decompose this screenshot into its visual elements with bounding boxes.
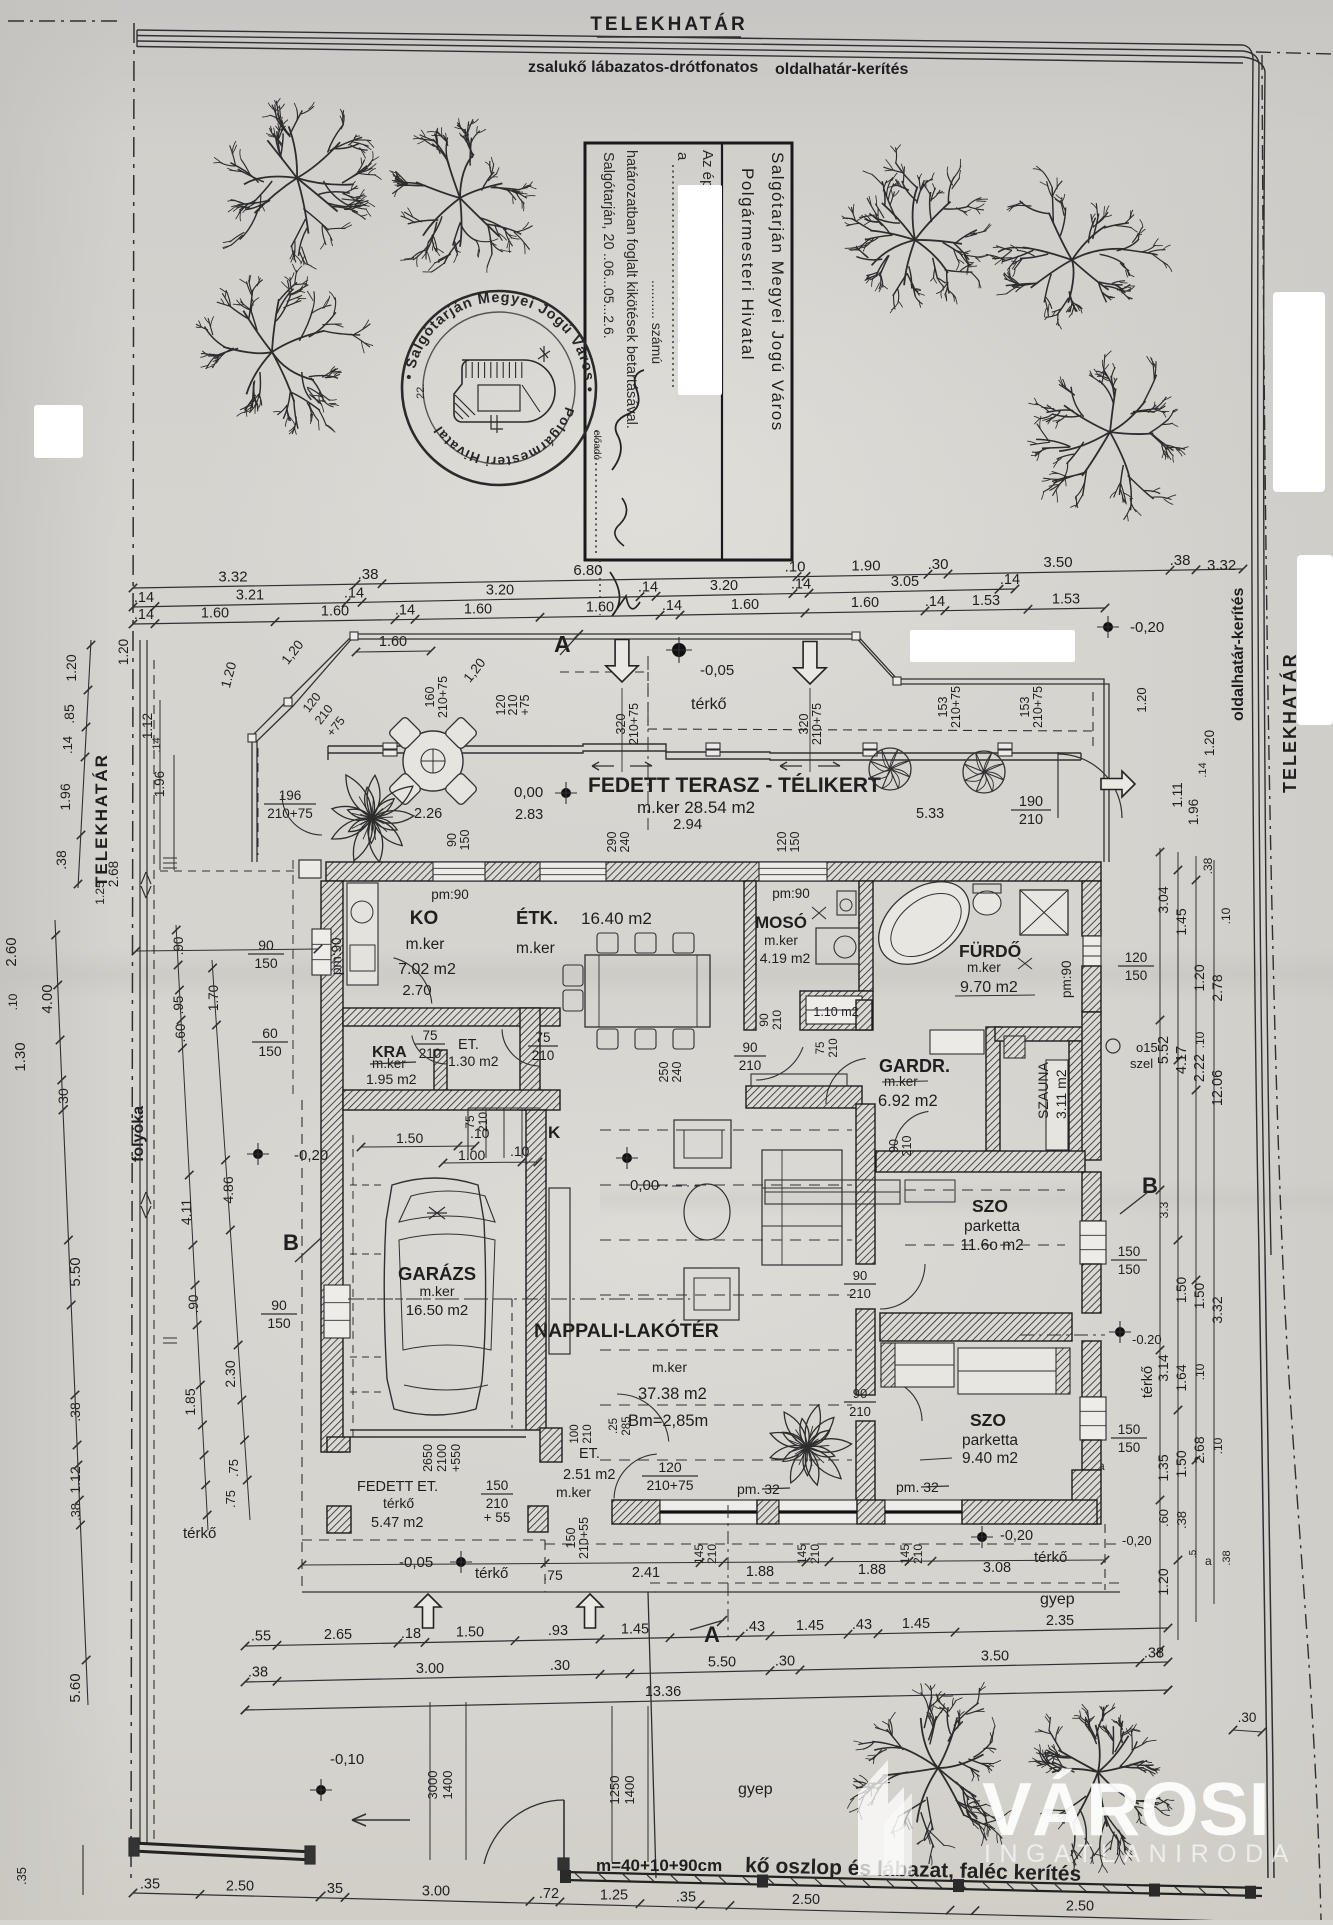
svg-text:1.00: 1.00 xyxy=(458,1147,485,1163)
svg-text:m=40+10+90cm: m=40+10+90cm xyxy=(596,1856,722,1875)
svg-text:folyóka: folyóka xyxy=(130,1106,147,1162)
svg-text:m.ker: m.ker xyxy=(406,936,445,953)
svg-text:90: 90 xyxy=(853,1268,867,1283)
svg-text:210+75: 210+75 xyxy=(436,676,450,718)
svg-text:5.52: 5.52 xyxy=(1156,1036,1172,1064)
svg-text:150: 150 xyxy=(254,955,278,971)
svg-text:1.30 m2: 1.30 m2 xyxy=(448,1053,499,1069)
svg-text:2.50: 2.50 xyxy=(792,1892,820,1908)
svg-text:3.14: 3.14 xyxy=(1155,1354,1171,1381)
svg-text:.10: .10 xyxy=(1193,1363,1207,1380)
svg-text:3.20: 3.20 xyxy=(486,583,514,599)
svg-text:6.80: 6.80 xyxy=(573,562,602,579)
svg-text:.14: .14 xyxy=(662,598,682,614)
svg-text:1.20: 1.20 xyxy=(1202,730,1217,756)
svg-text:-0,20: -0,20 xyxy=(1130,619,1164,636)
svg-text:2.50: 2.50 xyxy=(1066,1899,1094,1915)
svg-text:75: 75 xyxy=(535,1030,550,1045)
svg-text:240: 240 xyxy=(670,1062,684,1083)
svg-text:1.10 m2: 1.10 m2 xyxy=(813,1005,858,1019)
svg-text:2.83: 2.83 xyxy=(515,807,543,823)
svg-text:.35: .35 xyxy=(140,1876,160,1892)
svg-text:16.40 m2: 16.40 m2 xyxy=(581,909,652,928)
svg-text:+75: +75 xyxy=(518,694,532,715)
svg-text:-0,20: -0,20 xyxy=(1122,1533,1152,1548)
svg-text:m.ker: m.ker xyxy=(764,933,798,948)
svg-text:145: 145 xyxy=(692,1544,706,1564)
svg-text:3.50: 3.50 xyxy=(981,1649,1009,1665)
svg-text:térkő: térkő xyxy=(383,1495,414,1511)
svg-text:térkő: térkő xyxy=(1034,1549,1067,1566)
svg-text:1.60: 1.60 xyxy=(731,597,759,613)
svg-text:1.60: 1.60 xyxy=(851,595,879,611)
svg-text:.90: .90 xyxy=(171,937,186,956)
svg-text:1.45: 1.45 xyxy=(621,1621,649,1637)
svg-text:-0,10: -0,10 xyxy=(330,1751,364,1768)
svg-text:.60: .60 xyxy=(173,1024,188,1043)
svg-text:.75: .75 xyxy=(223,1490,238,1508)
svg-text:1400: 1400 xyxy=(622,1776,637,1805)
svg-text:5.50: 5.50 xyxy=(708,1655,736,1671)
svg-text:60: 60 xyxy=(262,1025,278,1041)
svg-text:előadó: előadó xyxy=(591,430,602,460)
svg-text:210: 210 xyxy=(1019,812,1043,828)
svg-text:.14: .14 xyxy=(638,580,658,596)
svg-text:SZO: SZO xyxy=(970,1410,1006,1430)
svg-text:gyep: gyep xyxy=(1040,1591,1075,1608)
svg-text:90: 90 xyxy=(258,937,274,953)
svg-text:2.50: 2.50 xyxy=(226,1879,254,1895)
svg-text:3000: 3000 xyxy=(425,1771,440,1800)
svg-text:1.50: 1.50 xyxy=(1192,1283,1207,1309)
svg-text:FEDETT ET.: FEDETT ET. xyxy=(357,1479,438,1495)
svg-text:1250: 1250 xyxy=(607,1776,622,1805)
svg-text:.14: .14 xyxy=(395,603,415,619)
svg-text:oldalhatár-kerítés: oldalhatár-kerítés xyxy=(1230,588,1247,721)
svg-text:m.ker: m.ker xyxy=(652,1359,687,1375)
svg-text:2.94: 2.94 xyxy=(673,816,702,833)
svg-text:160: 160 xyxy=(423,687,437,708)
svg-text:SZO: SZO xyxy=(972,1196,1008,1216)
svg-text:.75: .75 xyxy=(226,1459,241,1477)
svg-text:100: 100 xyxy=(569,1424,581,1443)
svg-text:.14: .14 xyxy=(791,576,811,592)
svg-text:a: a xyxy=(674,152,691,161)
svg-text:210: 210 xyxy=(770,1010,784,1030)
svg-text:TELEKHATÁR: TELEKHATÁR xyxy=(590,13,747,35)
svg-text:szel: szel xyxy=(1130,1056,1153,1071)
svg-text:TELEKHATÁR: TELEKHATÁR xyxy=(1279,652,1300,793)
svg-text:.55: .55 xyxy=(251,1629,271,1645)
svg-text:.38: .38 xyxy=(1170,552,1191,569)
svg-text:.14: .14 xyxy=(134,607,154,623)
svg-text:1.60: 1.60 xyxy=(464,601,492,617)
svg-text:37.38 m2: 37.38 m2 xyxy=(638,1385,707,1403)
svg-text:210+55: 210+55 xyxy=(577,1517,591,1559)
svg-text:.14: .14 xyxy=(925,594,945,610)
svg-text:1.20: 1.20 xyxy=(1155,1568,1171,1595)
svg-text:290: 290 xyxy=(605,832,619,853)
svg-text:150: 150 xyxy=(1118,1244,1141,1259)
svg-text:3.00: 3.00 xyxy=(416,1661,444,1677)
svg-text:o15: o15 xyxy=(1136,1040,1158,1055)
svg-text:3.32: 3.32 xyxy=(218,568,247,585)
svg-text:B: B xyxy=(283,1230,299,1255)
svg-text:210: 210 xyxy=(739,1058,762,1073)
svg-text:3.3: 3.3 xyxy=(1157,1201,1171,1218)
svg-text:3.11 m2: 3.11 m2 xyxy=(1053,1069,1069,1119)
svg-text:..06...05...2.6.: ..06...05...2.6. xyxy=(601,253,617,339)
svg-text:5.47 m2: 5.47 m2 xyxy=(371,1515,423,1531)
svg-text:.38: .38 xyxy=(248,1665,268,1681)
svg-text:1.30: 1.30 xyxy=(12,1042,29,1071)
svg-text:INGATLANIRODA: INGATLANIRODA xyxy=(984,1840,1297,1868)
svg-text:2100: 2100 xyxy=(435,1444,449,1472)
svg-text:16.50 m2: 16.50 m2 xyxy=(406,1302,469,1319)
svg-text:pm:90: pm:90 xyxy=(431,887,469,902)
svg-text:120: 120 xyxy=(775,832,789,853)
svg-text:1.45: 1.45 xyxy=(902,1616,930,1632)
svg-text:1.53: 1.53 xyxy=(1052,592,1080,608)
svg-text:210: 210 xyxy=(808,1544,822,1564)
svg-text:.38: .38 xyxy=(358,566,379,583)
svg-text:3.50: 3.50 xyxy=(1043,554,1072,571)
svg-text:2650: 2650 xyxy=(421,1444,435,1472)
svg-text:zsalukő lábazatos-drótfonatos: zsalukő lábazatos-drótfonatos xyxy=(528,59,758,76)
svg-text:.14: .14 xyxy=(60,736,75,754)
svg-text:75: 75 xyxy=(422,1028,437,1043)
svg-text:1.50: 1.50 xyxy=(1174,1277,1189,1303)
svg-text:.60: .60 xyxy=(1156,1509,1171,1527)
svg-text:1.11: 1.11 xyxy=(1170,782,1185,807)
svg-text:2.68: 2.68 xyxy=(106,861,121,887)
svg-text:2.26: 2.26 xyxy=(414,806,442,822)
svg-text:150: 150 xyxy=(1118,1440,1141,1455)
svg-text:.38: .38 xyxy=(68,1503,83,1521)
svg-text:210: 210 xyxy=(582,1424,594,1443)
svg-text:210+75: 210+75 xyxy=(810,703,824,745)
svg-text:2.41: 2.41 xyxy=(632,1565,660,1581)
svg-text:120: 120 xyxy=(1125,950,1148,965)
svg-text:m.ker: m.ker xyxy=(967,960,1001,975)
svg-text:gyep: gyep xyxy=(738,1781,773,1798)
svg-text:.90: .90 xyxy=(186,1295,201,1314)
svg-text:-0,20: -0,20 xyxy=(294,1147,328,1164)
svg-text:.14: .14 xyxy=(1197,762,1209,777)
svg-text:1.25: 1.25 xyxy=(93,881,107,905)
svg-text:m.ker: m.ker xyxy=(420,1283,455,1299)
svg-text:3.00: 3.00 xyxy=(422,1883,450,1899)
svg-text:.10: .10 xyxy=(6,993,20,1010)
svg-text:2.78: 2.78 xyxy=(1209,974,1225,1001)
svg-text:190: 190 xyxy=(1019,794,1043,810)
svg-text:.30: .30 xyxy=(775,1653,795,1669)
svg-text:parketta: parketta xyxy=(962,1432,1018,1449)
svg-text:m.ker 28.54 m2: m.ker 28.54 m2 xyxy=(637,798,755,817)
svg-text:.10: .10 xyxy=(1211,1437,1225,1454)
svg-text:FÜRDŐ: FÜRDŐ xyxy=(959,940,1021,961)
svg-text:90: 90 xyxy=(271,1297,287,1313)
svg-text:.93: .93 xyxy=(548,1623,568,1639)
svg-text:.85: .85 xyxy=(61,704,77,724)
svg-text:.......... számú: .......... számú xyxy=(649,280,665,364)
svg-text:210: 210 xyxy=(900,1136,914,1157)
svg-text:210+75: 210+75 xyxy=(949,686,963,728)
svg-text:.38: .38 xyxy=(1221,1550,1233,1565)
svg-text:153: 153 xyxy=(936,697,950,718)
svg-text:-0.20: -0.20 xyxy=(1132,1332,1162,1347)
svg-text:.30: .30 xyxy=(928,556,949,573)
svg-text:pm:90: pm:90 xyxy=(772,886,810,901)
svg-text:0,00: 0,00 xyxy=(514,784,543,801)
svg-text:2.30: 2.30 xyxy=(222,1360,238,1387)
svg-text:1.20: 1.20 xyxy=(116,639,131,665)
svg-text:150: 150 xyxy=(1125,968,1148,983)
svg-text:.35: .35 xyxy=(676,1889,696,1905)
svg-text:+550: +550 xyxy=(449,1444,463,1472)
svg-text:1.20: 1.20 xyxy=(1134,687,1149,712)
svg-text:térkő: térkő xyxy=(183,1525,216,1542)
svg-text:120: 120 xyxy=(658,1459,682,1475)
svg-text:210: 210 xyxy=(476,1112,490,1132)
svg-text:1.35: 1.35 xyxy=(1155,1454,1171,1481)
svg-text:150: 150 xyxy=(1118,1422,1141,1437)
svg-text:térkő: térkő xyxy=(1140,1366,1156,1398)
svg-text:1.12: 1.12 xyxy=(67,1466,83,1493)
svg-text:m.ker: m.ker xyxy=(556,1484,591,1500)
svg-text:.72: .72 xyxy=(539,1886,559,1902)
svg-text:5.60: 5.60 xyxy=(67,1673,84,1702)
svg-text:150: 150 xyxy=(267,1315,291,1331)
svg-text:1.60: 1.60 xyxy=(586,599,614,615)
svg-text:ET.: ET. xyxy=(458,1037,479,1053)
svg-text:1.60: 1.60 xyxy=(321,604,349,620)
svg-text:VÁROSI: VÁROSI xyxy=(982,1767,1270,1851)
svg-text:+ 55: + 55 xyxy=(484,1510,511,1525)
svg-text:210: 210 xyxy=(419,1046,442,1061)
svg-text:3.21: 3.21 xyxy=(236,588,264,604)
svg-text:210: 210 xyxy=(849,1404,871,1419)
svg-text:.14: .14 xyxy=(344,586,364,602)
svg-text:13.36: 13.36 xyxy=(645,1684,681,1700)
svg-text:90: 90 xyxy=(757,1013,771,1027)
svg-text:1.50: 1.50 xyxy=(1173,1450,1189,1477)
svg-text:150: 150 xyxy=(788,832,802,853)
svg-text:KO: KO xyxy=(410,908,439,929)
svg-text:210: 210 xyxy=(849,1286,871,1301)
svg-text:250: 250 xyxy=(657,1062,671,1083)
svg-text:2.35: 2.35 xyxy=(1046,1613,1074,1629)
svg-text:210: 210 xyxy=(532,1048,555,1063)
svg-text:75: 75 xyxy=(815,1042,827,1055)
svg-text:1.88: 1.88 xyxy=(746,1564,774,1580)
svg-text:240: 240 xyxy=(618,832,632,853)
svg-text:m.ker: m.ker xyxy=(516,940,555,957)
svg-text:150: 150 xyxy=(564,1528,578,1549)
svg-text:térkő: térkő xyxy=(691,696,727,713)
svg-text:Salgótarján Megyei Jogú Vár: Salgótarján Megyei Jogú Város xyxy=(768,152,787,432)
svg-text:FEDETT TERASZ - TÉLIKERT: FEDETT TERASZ - TÉLIKERT xyxy=(588,774,881,797)
svg-text:K: K xyxy=(548,1123,561,1142)
svg-text:22.: 22. xyxy=(415,384,427,399)
svg-text:.25: .25 xyxy=(608,1418,620,1434)
svg-text:11.6o m2: 11.6o m2 xyxy=(960,1237,1023,1254)
svg-text:2.51 m2: 2.51 m2 xyxy=(563,1467,615,1483)
svg-text:1.96: 1.96 xyxy=(1186,799,1201,825)
svg-text:12.06: 12.06 xyxy=(1210,1070,1226,1106)
svg-text:150: 150 xyxy=(1118,1262,1141,1277)
svg-text:210: 210 xyxy=(486,1496,509,1511)
svg-text:.38: .38 xyxy=(53,850,69,870)
svg-text:-0,20: -0,20 xyxy=(1000,1528,1033,1544)
svg-text:4.17: 4.17 xyxy=(1174,1046,1190,1074)
svg-text:210+75: 210+75 xyxy=(646,1477,693,1493)
svg-text:1.45: 1.45 xyxy=(796,1618,824,1634)
svg-text:SZAUNA: SZAUNA xyxy=(1035,1062,1051,1119)
svg-text:2.70: 2.70 xyxy=(402,982,431,999)
svg-text:3.04: 3.04 xyxy=(1155,886,1171,913)
svg-text:pm:90: pm:90 xyxy=(1059,960,1074,998)
svg-text:3.05: 3.05 xyxy=(891,574,919,590)
svg-text:1.85: 1.85 xyxy=(182,1388,198,1415)
svg-text:.14: .14 xyxy=(134,590,154,606)
svg-text:.75: .75 xyxy=(543,1567,563,1583)
svg-text:1.45: 1.45 xyxy=(1173,908,1189,935)
svg-text:3.32: 3.32 xyxy=(1209,1296,1225,1323)
svg-text:a: a xyxy=(1205,1554,1212,1568)
svg-text:90: 90 xyxy=(853,1386,867,1401)
svg-text:Salgótarján, 20: Salgótarján, 20 xyxy=(600,152,616,250)
svg-text:5.33: 5.33 xyxy=(916,806,944,822)
svg-text:1.64: 1.64 xyxy=(1173,1364,1189,1391)
svg-text:Bm=2,85m: Bm=2,85m xyxy=(628,1412,708,1430)
svg-text:4.19 m2: 4.19 m2 xyxy=(760,950,811,966)
svg-text:320: 320 xyxy=(614,714,628,735)
svg-text:Polgármesteri Hivatal: Polgármesteri Hivatal xyxy=(738,168,757,361)
svg-text:-0,05: -0,05 xyxy=(700,662,734,679)
svg-text:1.96: 1.96 xyxy=(57,783,73,810)
svg-text:75: 75 xyxy=(463,1115,477,1129)
svg-text:2.22: 2.22 xyxy=(1192,1054,1208,1082)
svg-text:1.20: 1.20 xyxy=(1191,964,1207,991)
svg-text:1.88: 1.88 xyxy=(858,1562,886,1578)
svg-text:2.60: 2.60 xyxy=(3,937,20,966)
svg-text:285: 285 xyxy=(621,1416,633,1435)
svg-text:.30: .30 xyxy=(550,1658,570,1674)
svg-text:térkő: térkő xyxy=(475,1565,508,1582)
svg-text:parketta: parketta xyxy=(964,1218,1020,1235)
svg-text:.38: .38 xyxy=(1144,1645,1164,1661)
svg-text:oldalhatár-kerítés: oldalhatár-kerítés xyxy=(775,61,908,78)
svg-text:1.50: 1.50 xyxy=(396,1130,423,1146)
svg-text:7.02 m2: 7.02 m2 xyxy=(398,961,456,978)
svg-text:90: 90 xyxy=(445,833,459,847)
svg-text:.10: .10 xyxy=(510,1143,530,1159)
svg-text:150: 150 xyxy=(486,1478,509,1493)
svg-text:.14: .14 xyxy=(1000,572,1020,588)
svg-text:1.53: 1.53 xyxy=(972,593,1000,609)
svg-text:.35: .35 xyxy=(14,1867,29,1885)
svg-text:1400: 1400 xyxy=(440,1771,455,1800)
svg-text:153: 153 xyxy=(1018,697,1032,718)
svg-text:.14: .14 xyxy=(151,737,163,752)
svg-text:1.50: 1.50 xyxy=(456,1625,484,1641)
svg-text:ET.: ET. xyxy=(579,1446,600,1462)
svg-text:9.70 m2: 9.70 m2 xyxy=(960,979,1018,996)
svg-text:210+75: 210+75 xyxy=(1031,686,1045,728)
svg-text:1.95 m2: 1.95 m2 xyxy=(366,1071,417,1087)
svg-text:1.60: 1.60 xyxy=(201,606,229,622)
svg-text:9.40 m2: 9.40 m2 xyxy=(962,1450,1018,1467)
svg-text:NAPPALI-LAKÓTÉR: NAPPALI-LAKÓTÉR xyxy=(534,1318,719,1342)
svg-text:.18: .18 xyxy=(401,1626,421,1642)
svg-text:.10: .10 xyxy=(1193,1031,1207,1048)
svg-text:MOSÓ: MOSÓ xyxy=(755,913,807,932)
svg-text:320: 320 xyxy=(797,714,811,735)
svg-text:.35: .35 xyxy=(323,1881,343,1897)
svg-text:150: 150 xyxy=(258,1043,282,1059)
svg-text:.10: .10 xyxy=(1219,907,1233,924)
svg-text:-0,05: -0,05 xyxy=(399,1554,433,1571)
svg-text:210: 210 xyxy=(828,1038,840,1057)
svg-text:1.20: 1.20 xyxy=(63,654,79,681)
svg-text:6.92 m2: 6.92 m2 xyxy=(878,1092,938,1110)
svg-text:.43: .43 xyxy=(852,1617,872,1633)
svg-text:pm:90: pm:90 xyxy=(329,937,344,975)
svg-text:1.60: 1.60 xyxy=(379,634,407,650)
svg-text:.30: .30 xyxy=(1238,1710,1257,1725)
svg-text:.10: .10 xyxy=(785,559,806,576)
svg-text:GARDR.: GARDR. xyxy=(879,1056,950,1076)
svg-text:GARÁZS: GARÁZS xyxy=(398,1263,476,1284)
svg-text:.5: .5 xyxy=(1188,1549,1199,1558)
svg-text:1.25: 1.25 xyxy=(600,1888,628,1904)
svg-text:.38: .38 xyxy=(1201,857,1215,874)
svg-text:1.90: 1.90 xyxy=(851,558,880,575)
svg-text:210: 210 xyxy=(705,1544,719,1564)
svg-text:3.08: 3.08 xyxy=(983,1560,1011,1576)
svg-text:ÉTK.: ÉTK. xyxy=(516,907,558,928)
svg-text:90: 90 xyxy=(742,1040,757,1055)
svg-text:.95: .95 xyxy=(171,996,186,1015)
svg-text:210+75: 210+75 xyxy=(627,703,641,745)
svg-text:.38: .38 xyxy=(1174,1511,1189,1529)
svg-text:150: 150 xyxy=(458,830,472,851)
svg-text:2.68: 2.68 xyxy=(1191,1436,1207,1463)
svg-text:90: 90 xyxy=(887,1139,901,1153)
svg-text:3.20: 3.20 xyxy=(710,578,738,594)
svg-text:3.32: 3.32 xyxy=(1207,557,1236,574)
svg-text:.43: .43 xyxy=(745,1619,765,1635)
svg-text:2.65: 2.65 xyxy=(324,1627,352,1643)
